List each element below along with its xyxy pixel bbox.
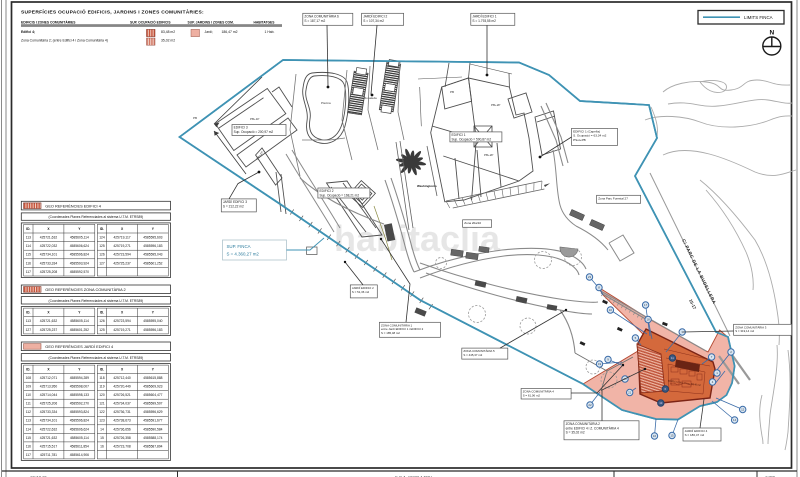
svg-text:114: 114 (26, 244, 31, 248)
svg-text:35,02 m2: 35,02 m2 (161, 39, 175, 43)
svg-text:83,48 m2: 83,48 m2 (161, 30, 175, 34)
svg-text:16: 16 (100, 444, 104, 448)
svg-text:4585599,507: 4585599,507 (143, 402, 162, 406)
svg-text:Sup. Ocupació = 200,97 m2: Sup. Ocupació = 200,97 m2 (234, 130, 274, 134)
svg-text:4585606,624: 4585606,624 (70, 427, 89, 431)
svg-text:425721,632: 425721,632 (40, 236, 58, 240)
svg-text:N: N (769, 30, 774, 37)
svg-text:425711,781: 425711,781 (40, 453, 57, 457)
svg-text:425722,632: 425722,632 (40, 427, 58, 431)
svg-text:Rosaleda: Rosaleda (364, 96, 377, 100)
svg-text:126: 126 (99, 253, 105, 257)
svg-text:425733,334: 425733,334 (40, 410, 58, 414)
svg-text:S = 319,14 m2: S = 319,14 m2 (735, 329, 754, 333)
svg-text:4585611,854: 4585611,854 (70, 444, 89, 448)
svg-text:117: 117 (26, 453, 31, 457)
svg-text:4585609,923: 4585609,923 (143, 385, 162, 389)
svg-text:Edifici 4;: Edifici 4; (21, 30, 35, 34)
svg-text:4585587,894: 4585587,894 (143, 444, 162, 448)
svg-text:425721,632: 425721,632 (40, 319, 58, 323)
svg-text:S = 107,34 m2: S = 107,34 m2 (363, 19, 384, 23)
svg-text:(Coordenades Planes Referencia: (Coordenades Planes Referenciades al sis… (49, 299, 144, 303)
svg-text:127: 127 (26, 328, 32, 332)
svg-text:121: 121 (99, 402, 105, 406)
svg-text:115: 115 (26, 436, 31, 440)
svg-text:114: 114 (26, 427, 31, 431)
svg-text:19: 19 (598, 362, 602, 366)
svg-text:425736,656: 425736,656 (113, 427, 131, 431)
svg-text:ID.: ID. (100, 311, 104, 315)
svg-text:PB+2P: PB+2P (491, 103, 500, 107)
svg-text:425725,206: 425725,206 (40, 402, 58, 406)
svg-text:14: 14 (100, 427, 104, 431)
svg-text:4585615,888: 4585615,888 (143, 376, 162, 380)
svg-text:126: 126 (99, 319, 105, 323)
svg-text:22: 22 (588, 403, 592, 407)
svg-text:4585588,174: 4585588,174 (143, 436, 162, 440)
svg-text:122: 122 (99, 410, 105, 414)
svg-text:110: 110 (26, 393, 31, 397)
svg-text:425733,334: 425733,334 (40, 261, 58, 265)
svg-text:Piscina: Piscina (321, 101, 331, 105)
svg-text:117: 117 (26, 270, 31, 274)
svg-text:425712,440: 425712,440 (113, 376, 131, 380)
svg-text:425719,271: 425719,271 (113, 328, 131, 332)
svg-text:12: 12 (741, 408, 745, 412)
svg-text:4585596,183: 4585596,183 (143, 328, 162, 332)
svg-text:PB+1P: PB+1P (250, 117, 259, 121)
svg-text:ID.: ID. (26, 227, 30, 231)
svg-text:4585605,114: 4585605,114 (70, 319, 89, 323)
svg-text:425721,632: 425721,632 (40, 436, 58, 440)
svg-text:111: 111 (26, 402, 31, 406)
svg-text:4585596,824: 4585596,824 (70, 253, 89, 257)
svg-text:425719,271: 425719,271 (113, 244, 131, 248)
svg-text:4585604,477: 4585604,477 (143, 393, 162, 397)
svg-text:4585596,824: 4585596,824 (70, 419, 89, 423)
svg-text:(Coordenades Planes Referencia: (Coordenades Planes Referenciades al sis… (49, 215, 144, 219)
svg-text:15: 15 (100, 436, 104, 440)
svg-text:425738,673: 425738,673 (113, 419, 131, 423)
svg-text:S = 1.793,55 m2: S = 1.793,55 m2 (472, 19, 496, 23)
svg-text:425723,708: 425723,708 (113, 444, 131, 448)
svg-text:425725,208: 425725,208 (40, 270, 58, 274)
svg-text:4585606,624: 4585606,624 (70, 244, 89, 248)
svg-text:425723,594: 425723,594 (113, 253, 131, 257)
svg-text:S = 186,47 m2: S = 186,47 m2 (685, 433, 705, 437)
svg-text:4585601,252: 4585601,252 (143, 261, 162, 265)
svg-text:127: 127 (99, 261, 105, 265)
svg-text:18: 18 (646, 318, 650, 322)
svg-text:Jardí;: Jardí; (205, 30, 214, 34)
svg-text:S = 61,06 m2: S = 61,06 m2 (523, 393, 541, 397)
svg-text:4585596,629: 4585596,629 (143, 410, 162, 414)
svg-text:4585592,570: 4585592,570 (70, 270, 89, 274)
svg-text:425725,237: 425725,237 (40, 328, 58, 332)
svg-text:120: 120 (99, 393, 105, 397)
svg-text:119: 119 (99, 385, 104, 389)
svg-text:425726,521: 425726,521 (113, 393, 131, 397)
svg-text:PB: PB (193, 116, 197, 120)
svg-text:113: 113 (26, 236, 31, 240)
svg-text:S = 185,48 m2: S = 185,48 m2 (381, 331, 400, 335)
svg-text:425712,071: 425712,071 (40, 376, 58, 380)
svg-text:116: 116 (26, 261, 31, 265)
svg-text:Zona Comunitària 2; (entre Edi: Zona Comunitària 2; (entre Edifici 4 i Z… (21, 39, 108, 43)
svg-text:13: 13 (659, 401, 663, 405)
svg-text:425720,449: 425720,449 (113, 385, 131, 389)
svg-text:115: 115 (26, 253, 31, 257)
svg-text:15: 15 (670, 434, 674, 438)
svg-text:4585591,677: 4585591,677 (143, 419, 162, 423)
svg-text:4585598,007: 4585598,007 (70, 385, 89, 389)
svg-text:SUP. FINCA: SUP. FINCA (227, 244, 251, 249)
svg-text:4585594,289: 4585594,289 (70, 376, 89, 380)
svg-text:14: 14 (733, 418, 737, 422)
svg-text:4585595,043: 4585595,043 (143, 253, 162, 257)
svg-text:GEO REFERÈNCIES EDIFICI 4: GEO REFERÈNCIES EDIFICI 4 (45, 204, 101, 209)
svg-text:Sup. Ocupació = 168,21 m2: Sup. Ocupació = 168,21 m2 (320, 194, 360, 198)
svg-text:425736,731: 425736,731 (113, 410, 131, 414)
svg-text:125: 125 (99, 244, 105, 248)
svg-text:4585605,114: 4585605,114 (70, 436, 89, 440)
svg-text:186,47 m2: 186,47 m2 (222, 30, 238, 34)
svg-text:4585605,114: 4585605,114 (70, 236, 89, 240)
svg-text:Washingtonia: Washingtonia (417, 184, 437, 188)
svg-text:425725,237: 425725,237 (113, 261, 131, 265)
svg-text:425713,950: 425713,950 (40, 385, 58, 389)
svg-text:425734,101: 425734,101 (40, 419, 58, 423)
svg-text:425715,517: 425715,517 (40, 444, 58, 448)
svg-text:PB: PB (450, 90, 454, 94)
svg-text:4585598,133: 4585598,133 (70, 393, 89, 397)
svg-text:124: 124 (99, 236, 105, 240)
svg-text:LIMITS FINCA: LIMITS FINCA (744, 15, 773, 20)
svg-text:4585592,270: 4585592,270 (70, 402, 89, 406)
svg-text:GEO REFERÈNCIES ZONA COMUNITÀR: GEO REFERÈNCIES ZONA COMUNITÀRIA 2 (45, 287, 125, 292)
svg-text:11: 11 (671, 356, 674, 360)
svg-text:108: 108 (26, 376, 32, 380)
svg-text:23: 23 (588, 275, 592, 279)
svg-text:425719,117: 425719,117 (113, 236, 130, 240)
svg-text:S = 187,17 m2: S = 187,17 m2 (304, 19, 325, 23)
svg-text:Sup. Ocupació = 590,87 m2: Sup. Ocupació = 590,87 m2 (452, 137, 492, 141)
svg-text:SUP. JARDINS I ZONES COM.: SUP. JARDINS I ZONES COM. (188, 20, 234, 24)
svg-text:S = 212,22 m2: S = 212,22 m2 (223, 204, 244, 208)
svg-text:425723,594: 425723,594 (113, 319, 131, 323)
svg-text:112: 112 (26, 410, 31, 414)
svg-text:10: 10 (609, 308, 613, 312)
svg-text:EDIFICIS I ZONES COMUNITÀRIES: EDIFICIS I ZONES COMUNITÀRIES (21, 19, 76, 24)
svg-text:17: 17 (644, 303, 648, 307)
svg-text:4585601,252: 4585601,252 (70, 328, 89, 332)
svg-text:425734,101: 425734,101 (40, 253, 58, 257)
svg-text:109: 109 (26, 385, 32, 389)
svg-text:ID.: ID. (26, 368, 30, 372)
svg-text:PB+2P: PB+2P (484, 153, 493, 157)
svg-text:425722,032: 425722,032 (40, 244, 58, 248)
svg-text:116: 116 (26, 444, 31, 448)
svg-text:Zona 20a/10: Zona 20a/10 (464, 221, 481, 225)
svg-text:ID.: ID. (100, 368, 104, 372)
svg-text:(Coordenades Planes Referencia: (Coordenades Planes Referenciades al sis… (49, 356, 144, 360)
svg-text:SUP. OCUPACIÓ EDIFICIS: SUP. OCUPACIÓ EDIFICIS (130, 19, 171, 24)
svg-text:118: 118 (99, 376, 104, 380)
svg-text:4585590,584: 4585590,584 (143, 427, 162, 431)
svg-text:125: 125 (99, 328, 105, 332)
svg-text:Zona Parc Forestal 27: Zona Parc Forestal 27 (598, 196, 628, 200)
svg-text:4585593,924: 4585593,924 (70, 261, 89, 265)
svg-text:GEO REFERÈNCIES JARDÍ EDIFICI: GEO REFERÈNCIES JARDÍ EDIFICI 4 (45, 344, 114, 349)
svg-text:4585595,040: 4585595,040 (143, 319, 162, 323)
svg-text:S = 445,37 m2: S = 445,37 m2 (463, 353, 482, 357)
svg-text:PSot+PB: PSot+PB (573, 138, 586, 142)
svg-text:123: 123 (99, 419, 105, 423)
svg-text:4585596,183: 4585596,183 (143, 244, 162, 248)
svg-text:425714,044: 425714,044 (40, 393, 58, 397)
svg-text:4585614,906: 4585614,906 (70, 453, 89, 457)
svg-text:425726,358: 425726,358 (113, 436, 131, 440)
svg-text:16: 16 (653, 434, 657, 438)
svg-text:ID.: ID. (100, 227, 104, 231)
svg-text:4585593,824: 4585593,824 (70, 410, 89, 414)
svg-text:S = 4.360,27 m2: S = 4.360,27 m2 (227, 252, 260, 257)
svg-text:S = 35,02 m2: S = 35,02 m2 (566, 431, 585, 435)
svg-text:S = 51,36 m2: S = 51,36 m2 (352, 290, 370, 294)
svg-text:ID.: ID. (26, 311, 30, 315)
svg-text:113: 113 (26, 319, 31, 323)
svg-text:1 Hab.: 1 Hab. (265, 30, 275, 34)
svg-text:113: 113 (26, 419, 31, 423)
svg-text:4585595,603: 4585595,603 (143, 236, 162, 240)
svg-text:425734,037: 425734,037 (113, 402, 131, 406)
svg-text:21: 21 (628, 391, 632, 395)
svg-text:HABITATGES: HABITATGES (254, 20, 276, 24)
